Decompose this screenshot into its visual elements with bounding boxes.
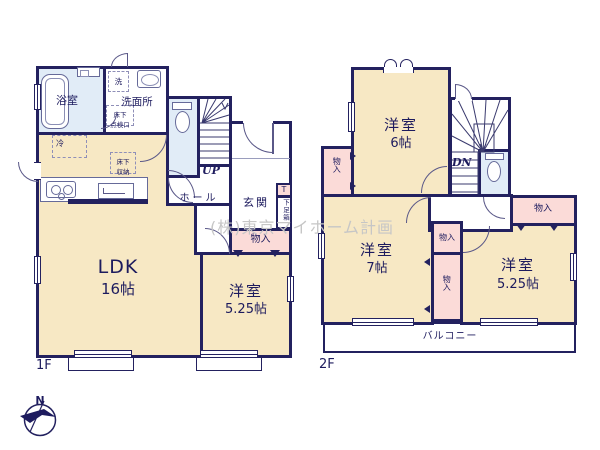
back-door-opening [34, 162, 41, 180]
closet-1f-door-mark-right [270, 250, 280, 257]
toilet-2f-icon [485, 153, 504, 160]
shoe-cabinet-label: 下足箱 [281, 199, 288, 222]
window-bath-left [34, 84, 41, 110]
closet-2f-left-door-mark-upper [350, 152, 356, 160]
washroom-label: 洗面所 [110, 96, 164, 108]
closet-2f-mid-upper-label: 物入 [432, 233, 462, 242]
closet-2f-mid-door-mark-lower [424, 305, 430, 313]
closet-2f-left-label: 物入 [332, 157, 341, 173]
closet-2f-left-door-mark-lower [350, 182, 356, 190]
bedroom525-size-label: 5.25帖 [488, 278, 548, 293]
window-bedroom-1f-right [287, 276, 294, 302]
bedroom7-label: 洋室 [347, 242, 407, 259]
toilet-1f-bowl [175, 111, 190, 133]
underfloor-storage-line2: 収納 [111, 166, 135, 176]
window-bedroom6-top-opening [383, 67, 414, 73]
floorplan-canvas: 洗 床下 点検口 冷 床下 収納 UP [0, 0, 600, 450]
underfloor-storage-line1: 床下 [111, 156, 135, 166]
terrace-step-right [196, 357, 262, 371]
closet-2f-right-door-mark-left [516, 224, 526, 231]
bath-vanity-icon [77, 67, 100, 77]
bedroom-1f-size-label: 5.25帖 [206, 303, 286, 318]
toilet-1f-icon [172, 102, 192, 110]
closet-2f-right-door-mark-right [549, 224, 559, 231]
door-leaf-stairs-2f [455, 84, 456, 99]
bedroom-1f-label: 洋室 [206, 283, 286, 300]
compass-north-label: N [35, 394, 44, 407]
door-leaf-entrance [272, 123, 274, 154]
washroom-sink-icon [137, 70, 161, 88]
washer-box: 洗 [108, 71, 129, 92]
door-leaf-washroom [127, 53, 128, 67]
awning-window-right [400, 59, 413, 67]
counter-wall [68, 199, 148, 204]
awning-window-left [384, 59, 397, 67]
door-arc-stairs-2f [455, 84, 472, 99]
hall-label: ホール [172, 193, 226, 205]
terrace-step-left [68, 357, 134, 371]
stairs-1f-icon [200, 99, 229, 164]
kitchen-sink-icon [98, 183, 134, 199]
stairs-2f-icon [452, 100, 508, 194]
ldk-size-label: 16帖 [78, 281, 158, 298]
entrance-step-line [232, 158, 290, 159]
closet-1f-door-mark-left [233, 250, 243, 257]
balcony-label: バルコニー [408, 331, 492, 343]
stove-icon [46, 181, 76, 198]
bedroom525-label: 洋室 [488, 257, 548, 274]
fridge-box: 冷 [52, 135, 87, 158]
entrance-label: 玄関 [234, 197, 278, 210]
stairs-up-label: UP [202, 165, 220, 178]
compass-icon: N [16, 390, 68, 446]
fridge-label: 冷 [56, 139, 64, 148]
stairs-dn-label: DN [452, 157, 472, 170]
closet-2f-mid-lower-label: 物入 [442, 275, 451, 291]
window-bedroom7-left [318, 233, 325, 259]
sliding-window-bedroom525-bottom [480, 318, 538, 326]
bedroom7-size-label: 7帖 [347, 262, 407, 277]
floor1-label: 1F [36, 359, 52, 374]
bedroom6-size-label: 6帖 [371, 137, 431, 152]
window-bedroom525-right [570, 253, 577, 281]
shoe-cabinet-t-label: T [276, 185, 292, 194]
ldk-label: LDK [78, 257, 158, 279]
bath-label: 浴室 [47, 95, 87, 108]
closet-2f-right-label: 物入 [513, 204, 573, 214]
toilet-2f-bowl [487, 161, 501, 182]
sliding-window-bedroom7-bottom [352, 318, 414, 326]
washer-label: 洗 [109, 78, 128, 87]
bedroom6-label: 洋室 [371, 117, 431, 134]
closet-2f-mid-door-mark-upper [424, 258, 430, 266]
closet-1f-label: 物入 [232, 234, 289, 246]
window-ldk-left [34, 256, 41, 284]
underfloor-storage-box: 床下 収納 [110, 152, 136, 174]
floor2-label: 2F [319, 358, 335, 373]
door-arc-washroom-exterior [111, 53, 128, 67]
window-bedroom6-left [348, 102, 355, 132]
